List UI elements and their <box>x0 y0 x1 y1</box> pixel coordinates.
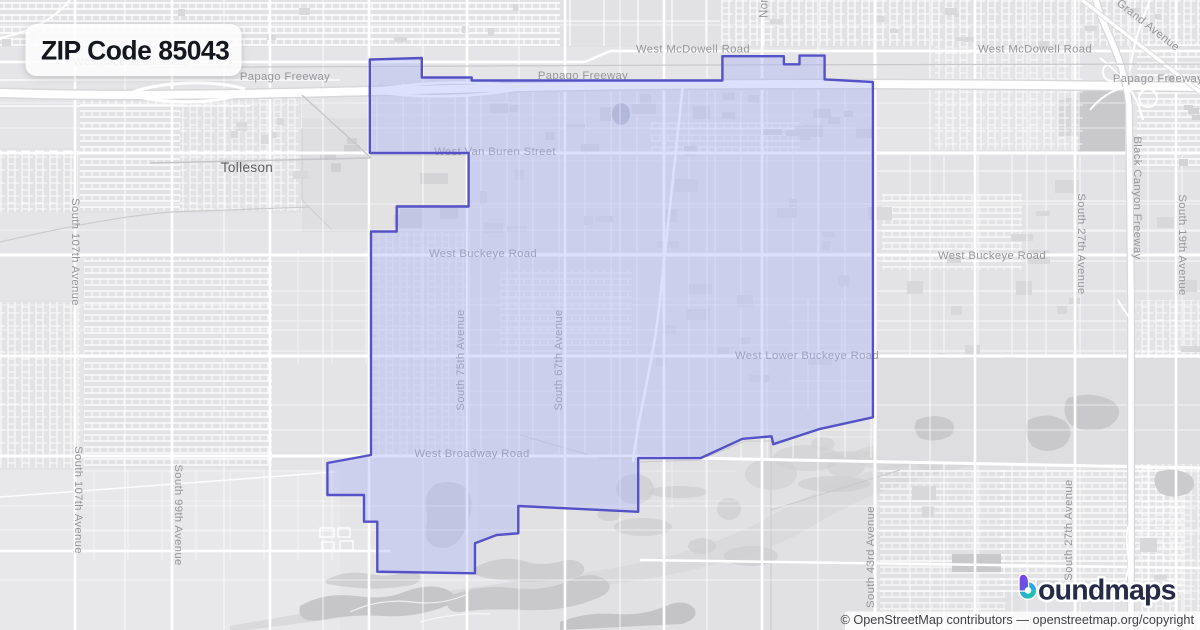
svg-text:Black Canyon Freeway: Black Canyon Freeway <box>1131 136 1143 259</box>
svg-text:South 107th Avenue: South 107th Avenue <box>69 198 81 306</box>
svg-text:© OpenStreetMap contributors —: © OpenStreetMap contributors — openstree… <box>841 613 1195 627</box>
svg-text:Papago Freeway: Papago Freeway <box>1113 73 1200 85</box>
svg-text:West McDowell Road: West McDowell Road <box>978 44 1092 56</box>
svg-text:Papago Freeway: Papago Freeway <box>240 71 330 83</box>
svg-text:South 19th Avenue: South 19th Avenue <box>1176 194 1188 295</box>
svg-text:ZIP Code 85043: ZIP Code 85043 <box>41 36 229 66</box>
svg-text:West Buckeye Road: West Buckeye Road <box>938 250 1046 262</box>
svg-text:Tolleson: Tolleson <box>221 160 273 175</box>
svg-text:South 99th Avenue: South 99th Avenue <box>172 464 184 565</box>
svg-text:South 27th Avenue: South 27th Avenue <box>1063 479 1075 580</box>
svg-text:North 51st Avenue: North 51st Avenue <box>759 0 771 18</box>
svg-text:oundmaps: oundmaps <box>1038 575 1176 607</box>
svg-text:South 27th Avenue: South 27th Avenue <box>1075 193 1087 294</box>
svg-text:South 107th Avenue: South 107th Avenue <box>72 446 84 554</box>
svg-text:West McDowell Road: West McDowell Road <box>636 44 750 56</box>
svg-text:South 43rd Avenue: South 43rd Avenue <box>865 506 877 608</box>
